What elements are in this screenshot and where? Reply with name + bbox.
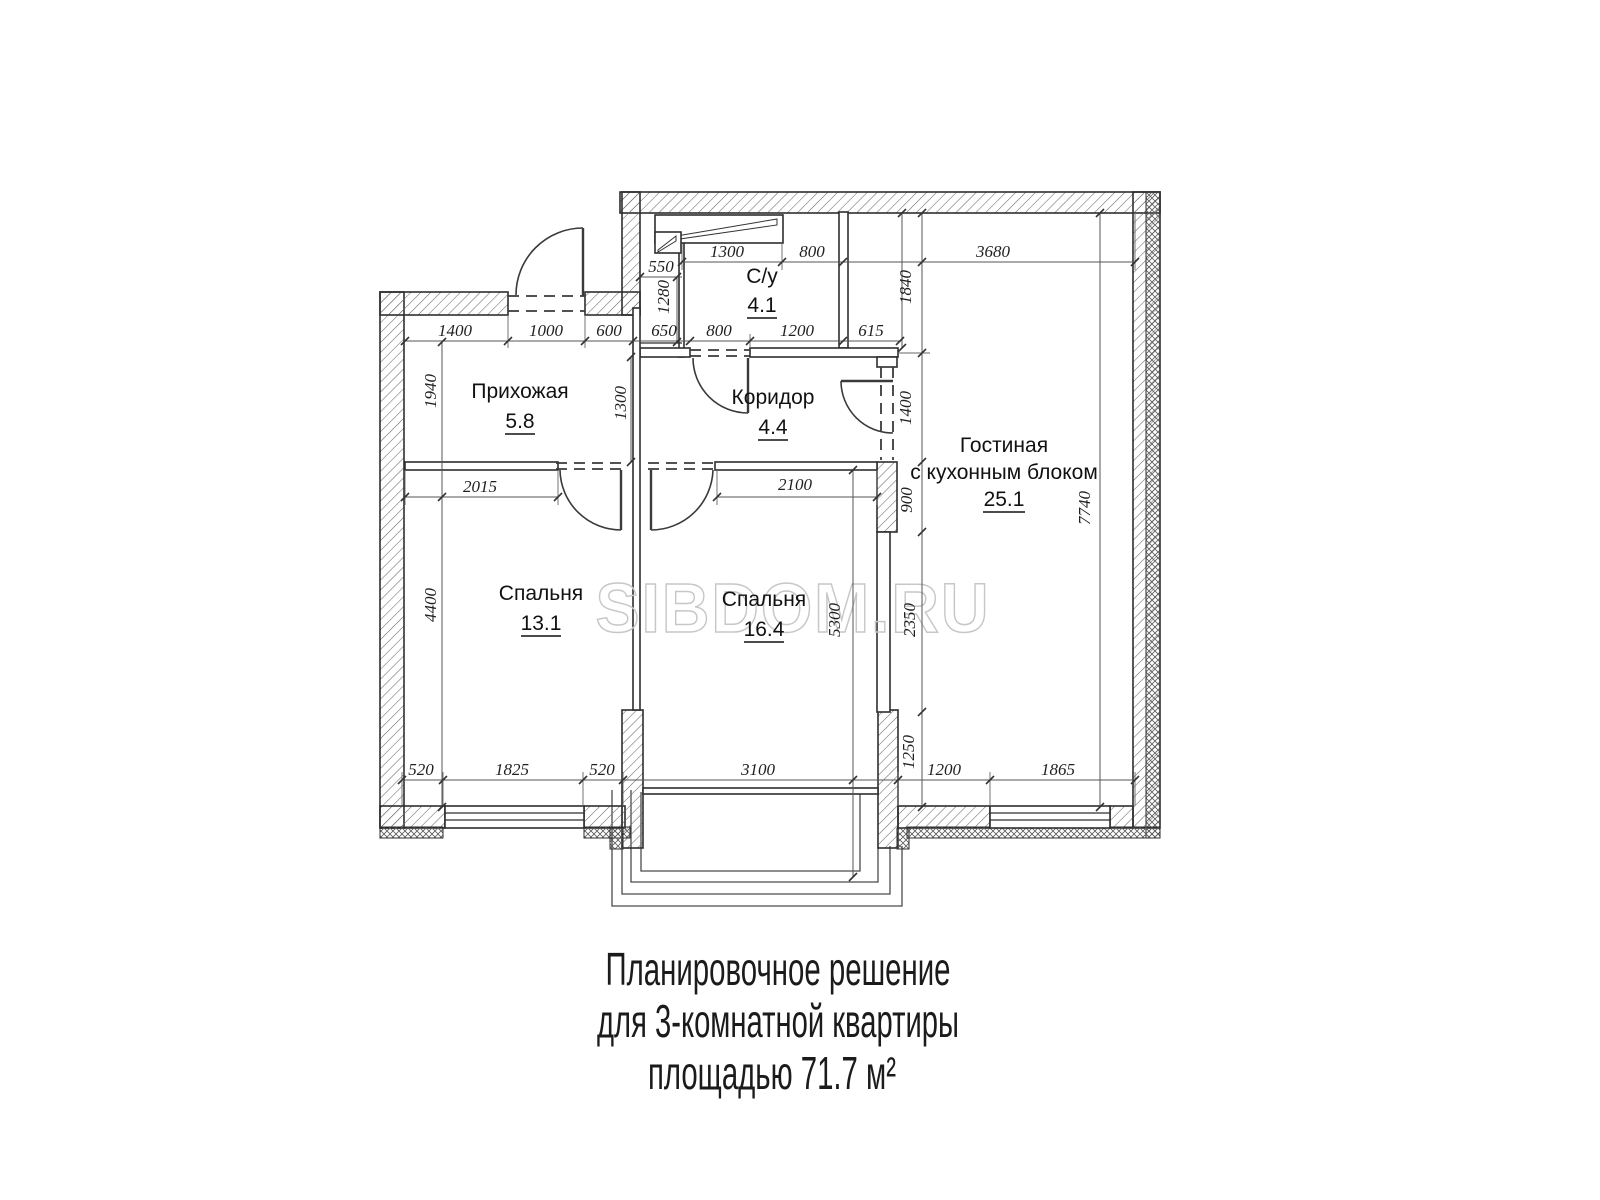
- caption-line-3: площадью 71.7 м²: [648, 1047, 896, 1099]
- dim-1825: 1825: [495, 760, 529, 779]
- dim-1200-bottom: 1200: [927, 760, 962, 779]
- dim-1300-top: 1300: [710, 242, 745, 261]
- room-label-living-1: Гостиная: [960, 434, 1048, 457]
- insulation-layer: [380, 192, 1160, 849]
- room-area-living: 25.1: [984, 488, 1025, 511]
- dim-1840: 1840: [896, 270, 915, 305]
- dim-1250: 1250: [899, 735, 918, 770]
- dim-1400-top: 1400: [438, 321, 473, 340]
- caption-line-2: для 3-комнатной квартиры: [597, 995, 959, 1047]
- room-area-bedroom2: 16.4: [744, 618, 785, 641]
- balcony-outline: [612, 790, 902, 906]
- floor-plan-drawing: SIBDOM.RU: [0, 0, 1600, 1200]
- dim-800-bath-door: 800: [706, 321, 732, 340]
- dim-520-right: 520: [589, 760, 615, 779]
- dim-1865: 1865: [1041, 760, 1075, 779]
- dim-5300: 5300: [825, 603, 844, 638]
- dim-4400: 4400: [421, 588, 440, 623]
- room-area-bedroom1: 13.1: [521, 612, 562, 635]
- bedroom1-door: [560, 470, 621, 530]
- dim-1940: 1940: [421, 374, 440, 409]
- room-area-bathroom: 4.1: [747, 294, 776, 317]
- bedroom2-door: [651, 470, 713, 530]
- caption-line-1: Планировочное решение: [606, 943, 951, 995]
- room-label-bedroom1: Спальня: [499, 582, 583, 605]
- dim-900: 900: [897, 487, 916, 513]
- dim-615: 615: [858, 321, 884, 340]
- dim-2100: 2100: [778, 475, 813, 494]
- exterior-walls: [380, 192, 1160, 848]
- room-area-hallway: 5.8: [505, 410, 534, 433]
- caption: Планировочное решение для 3-комнатной кв…: [597, 943, 959, 1099]
- dim-550: 550: [648, 257, 674, 276]
- entrance-door: [516, 228, 583, 296]
- dim-1200-bath: 1200: [780, 321, 815, 340]
- dim-1280: 1280: [654, 280, 673, 315]
- dim-800-top: 800: [799, 242, 825, 261]
- window-living: [990, 806, 1110, 828]
- dim-1400-vert: 1400: [896, 391, 915, 426]
- dim-2350: 2350: [900, 603, 919, 638]
- dim-650: 650: [651, 321, 677, 340]
- dim-1000-top: 1000: [529, 321, 564, 340]
- living-door: [841, 381, 893, 433]
- room-label-bedroom2: Спальня: [722, 588, 806, 611]
- dim-3680: 3680: [975, 242, 1011, 261]
- room-label-corridor: Коридор: [732, 386, 815, 409]
- dim-600-top: 600: [596, 321, 622, 340]
- dim-2015: 2015: [463, 477, 497, 496]
- dim-3100: 3100: [740, 760, 776, 779]
- room-label-living-2: с кухонным блоком: [910, 461, 1098, 484]
- room-label-hallway: Прихожая: [471, 380, 568, 403]
- window-bedroom1: [445, 806, 584, 828]
- room-label-bathroom: С/у: [746, 265, 778, 288]
- room-area-corridor: 4.4: [758, 416, 788, 439]
- dim-7740: 7740: [1075, 491, 1094, 526]
- floor-plan-page: SIBDOM.RU: [0, 0, 1600, 1200]
- dim-520-left: 520: [408, 760, 434, 779]
- dim-1300-vert: 1300: [611, 386, 630, 421]
